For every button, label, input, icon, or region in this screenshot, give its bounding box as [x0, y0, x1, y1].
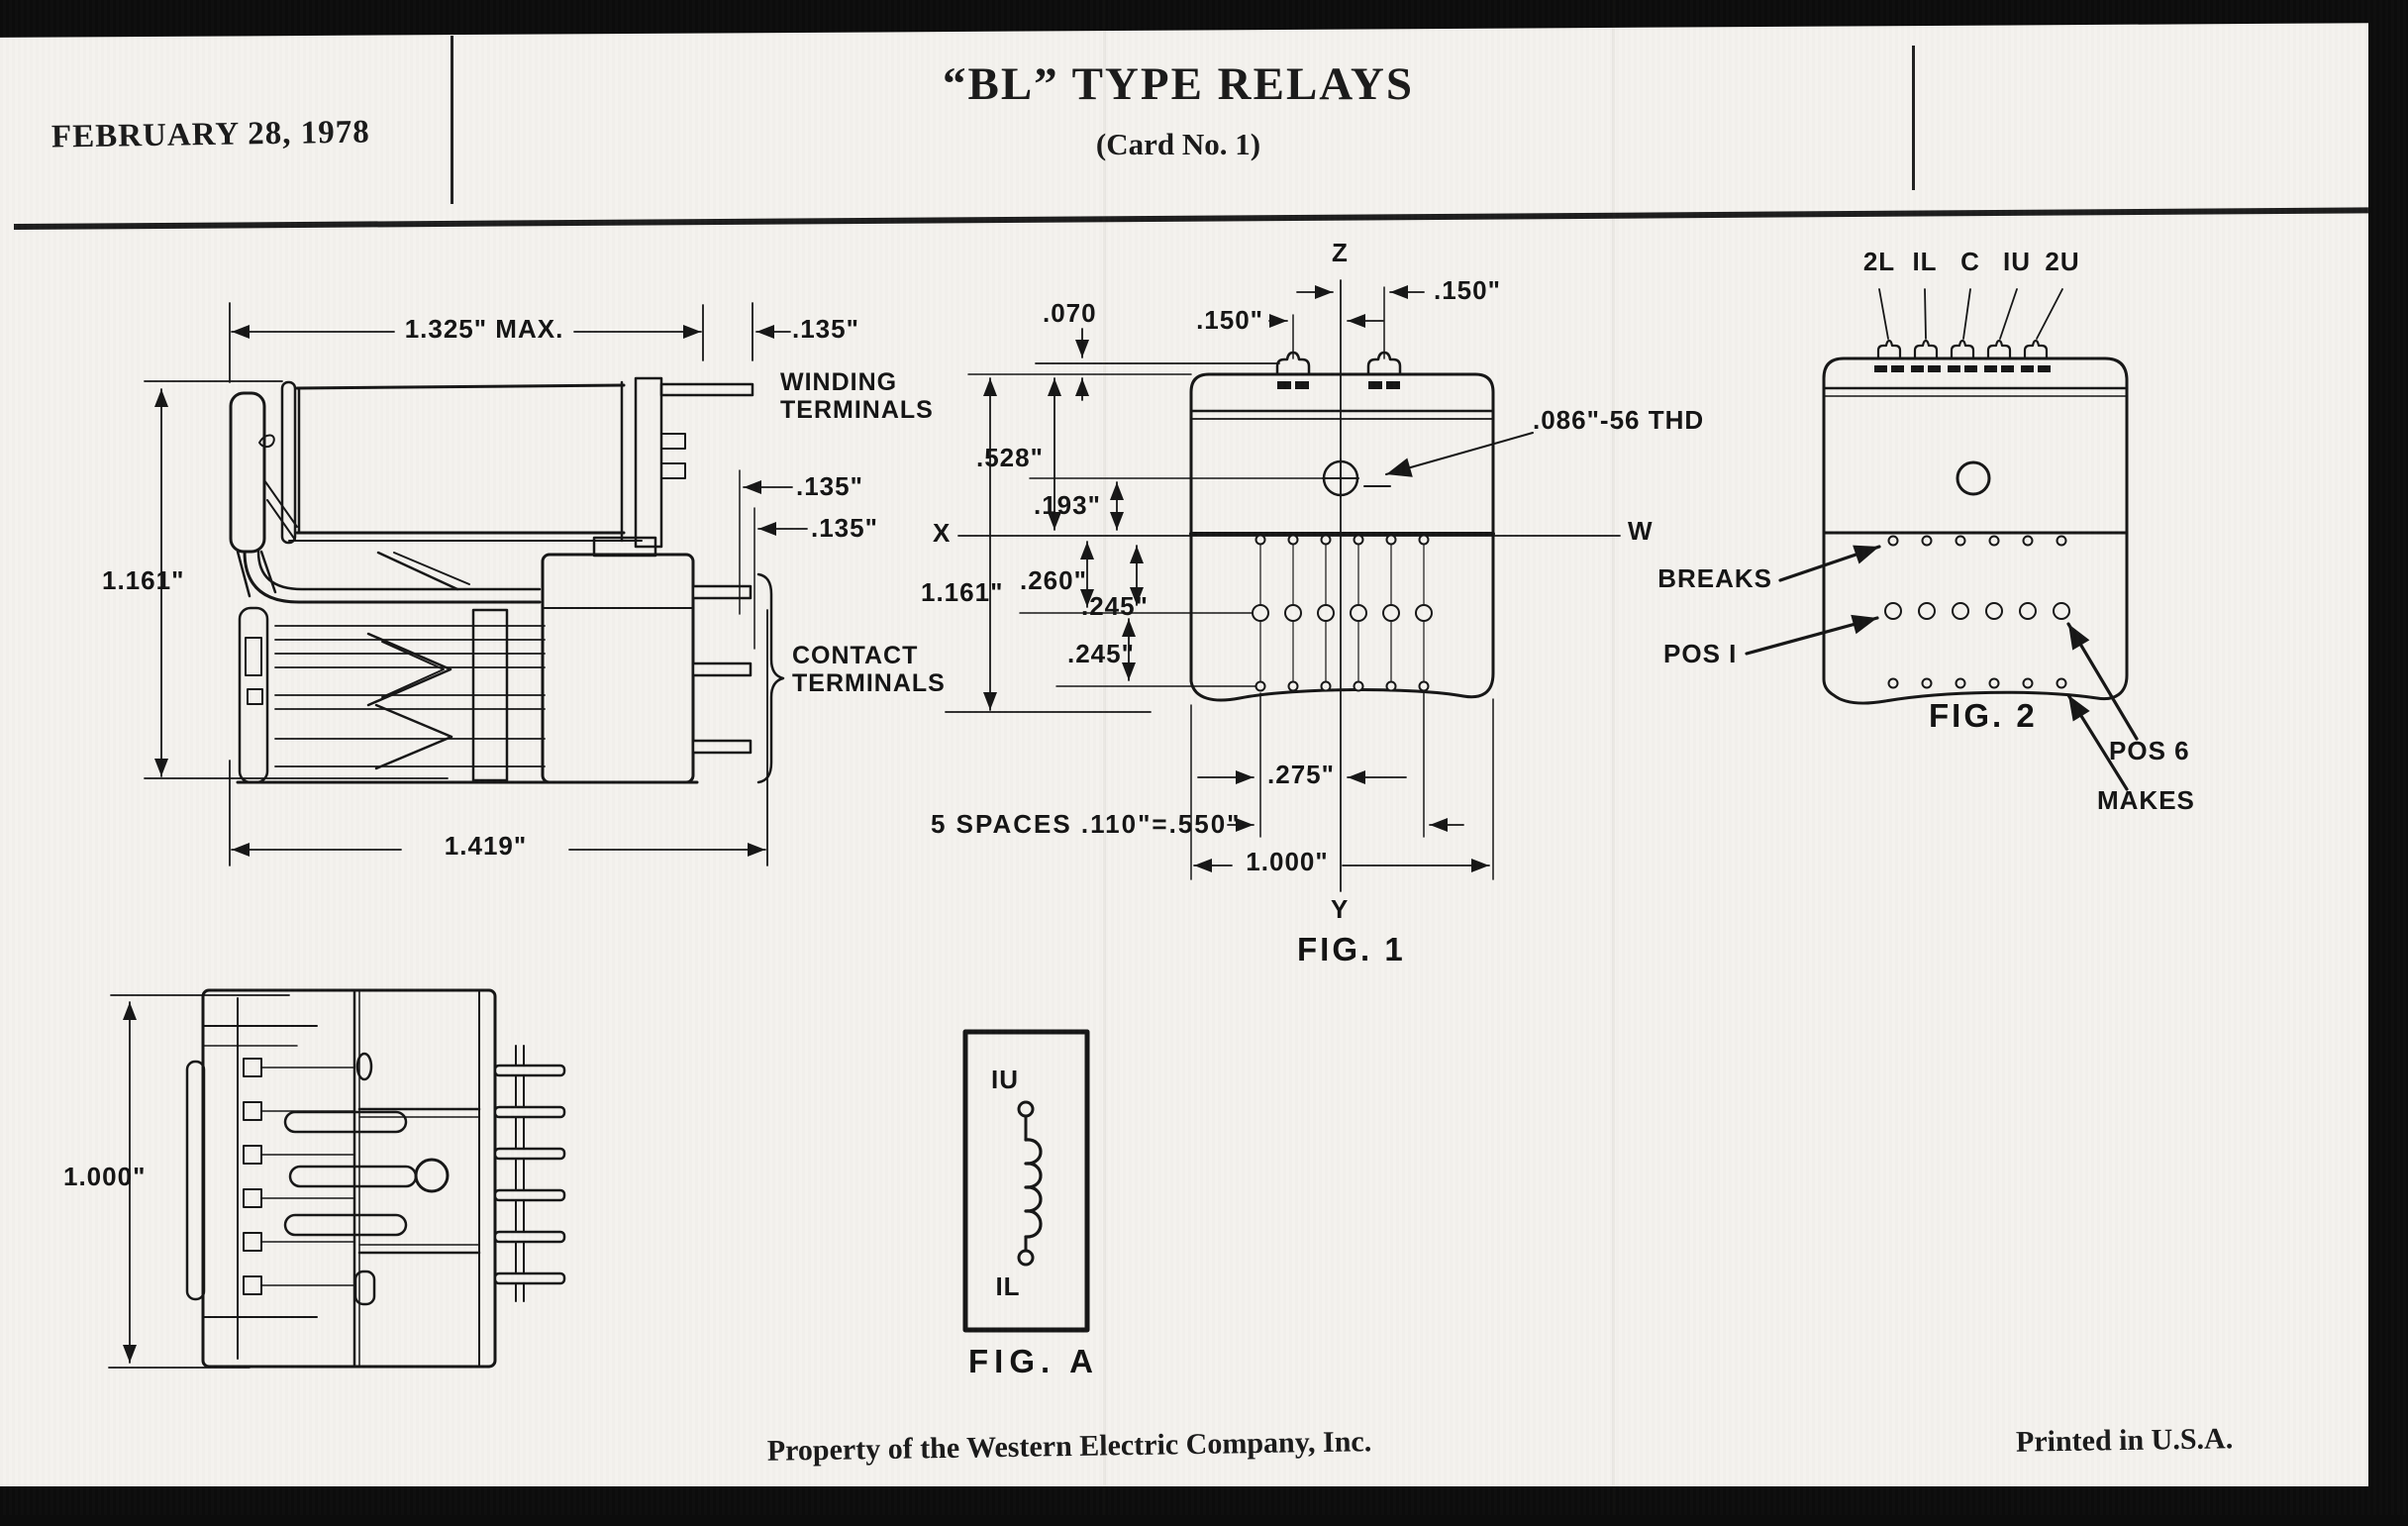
scanned-relay-card: { "header": { "date": "FEBRUARY 28, 1978…	[0, 0, 2408, 1515]
dim-label-245-lower: .245"	[1067, 640, 1135, 668]
axis-label-w: W	[1628, 517, 1654, 546]
dim-label-1161-side: 1.161"	[102, 566, 184, 595]
dim-label-193: .193"	[1034, 491, 1101, 520]
side-view-drawing	[145, 303, 807, 865]
thread-spec-label: .086"-56 THD	[1533, 406, 1704, 435]
dim-label-135-lower: .135"	[811, 514, 878, 543]
dim-label-150-left: .150"	[1188, 306, 1263, 335]
spaces-note-label: 5 SPACES .110"=.550"	[931, 810, 1242, 839]
contact-terminals-label: CONTACT TERMINALS	[792, 642, 980, 697]
dim-label-1419: 1.419"	[404, 832, 567, 861]
dim-label-070: .070	[1043, 299, 1097, 328]
fig2-caption: FIG. 2	[1929, 697, 2038, 735]
dim-label-1000-fig1: 1.000"	[1234, 848, 1341, 876]
top-view-drawing	[109, 990, 564, 1368]
dim-label-1161-fig1: 1.161"	[921, 578, 1003, 607]
pos6-label: POS 6	[2109, 737, 2190, 765]
terminal-label-c: C	[1947, 248, 1994, 276]
breaks-label: BREAKS	[1642, 564, 1772, 593]
fig1-caption: FIG. 1	[1297, 931, 1406, 968]
dim-label-1000-topview: 1.000"	[63, 1163, 146, 1191]
terminal-label-2l: 2L	[1856, 248, 1903, 276]
axis-label-y: Y	[1331, 895, 1349, 924]
dim-label-275: .275"	[1257, 761, 1345, 789]
dim-label-245-upper: .245"	[1081, 592, 1149, 621]
terminal-label-1l: IL	[1901, 248, 1949, 276]
dim-label-135-upper: .135"	[796, 472, 863, 501]
dim-label-1325-max: 1.325" MAX.	[396, 315, 572, 344]
figA-terminal-bottom-label: IL	[985, 1272, 1031, 1301]
figA-terminal-top-label: IU	[982, 1066, 1028, 1094]
pos1-label: POS I	[1663, 640, 1737, 668]
printed-note: Printed in U.S.A.	[2016, 1422, 2234, 1459]
dim-label-135-tip: .135"	[792, 315, 859, 344]
line-art	[0, 0, 2408, 1515]
scan-streak-1	[1103, 0, 1106, 1515]
dim-label-260: .260"	[1020, 566, 1087, 595]
dim-label-150-right: .150"	[1434, 276, 1501, 305]
axis-label-z: Z	[1332, 239, 1349, 267]
dim-label-528: .528"	[976, 444, 1044, 472]
axis-label-x: X	[933, 519, 951, 548]
winding-terminals-label: WINDING TERMINALS	[780, 368, 953, 424]
terminal-label-1u: IU	[1993, 248, 2041, 276]
figA-caption: FIG. A	[968, 1343, 1099, 1380]
terminal-label-2u: 2U	[2039, 248, 2086, 276]
scan-streak-2	[1612, 0, 1615, 1515]
makes-label: MAKES	[2097, 786, 2195, 815]
